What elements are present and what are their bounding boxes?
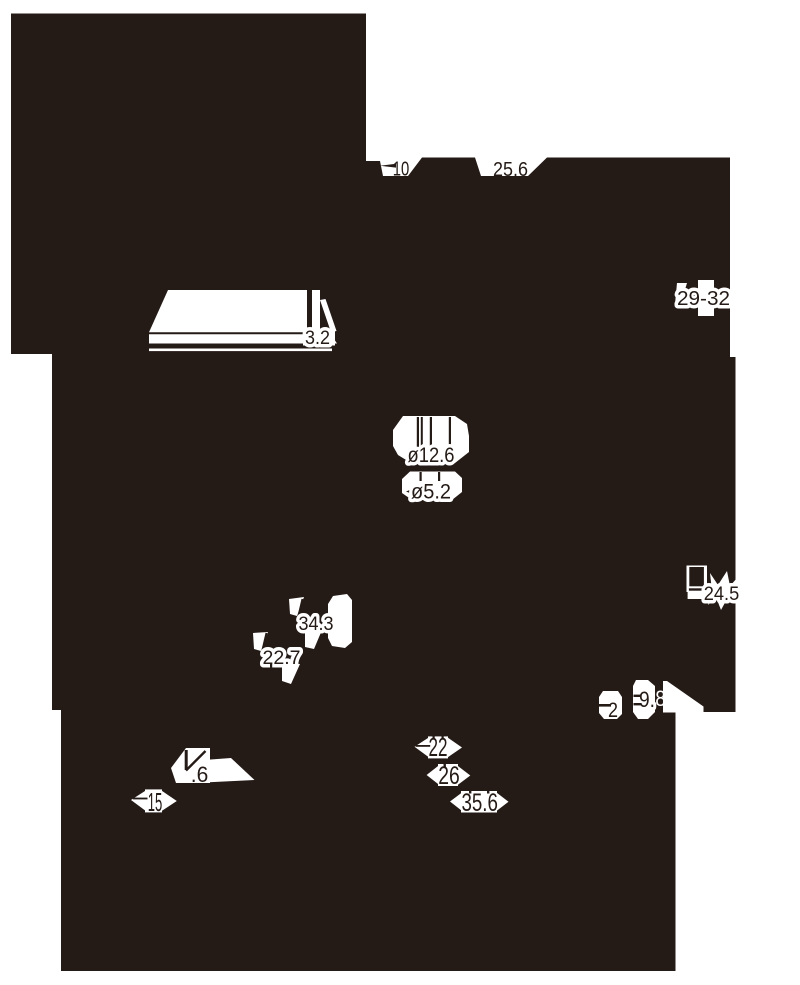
- svg-text:22.7: 22.7: [263, 647, 301, 669]
- svg-text:15: 15: [148, 787, 163, 817]
- svg-text:3.2: 3.2: [305, 328, 330, 349]
- svg-text:22: 22: [429, 732, 448, 762]
- svg-text:26: 26: [438, 762, 460, 790]
- svg-text:35.6: 35.6: [461, 789, 498, 817]
- svg-text:.6: .6: [191, 762, 209, 787]
- svg-text:ø12.6: ø12.6: [408, 443, 455, 467]
- svg-text:8: 8: [655, 686, 666, 711]
- svg-text:25.6: 25.6: [493, 158, 528, 181]
- svg-text:34.3: 34.3: [299, 613, 334, 635]
- svg-text:29-32: 29-32: [677, 287, 730, 310]
- svg-text:10: 10: [393, 159, 410, 181]
- svg-text:9.: 9.: [639, 687, 655, 712]
- svg-text:2: 2: [608, 698, 618, 722]
- svg-text:24.5: 24.5: [704, 583, 740, 605]
- svg-text:ø5.2: ø5.2: [411, 481, 451, 504]
